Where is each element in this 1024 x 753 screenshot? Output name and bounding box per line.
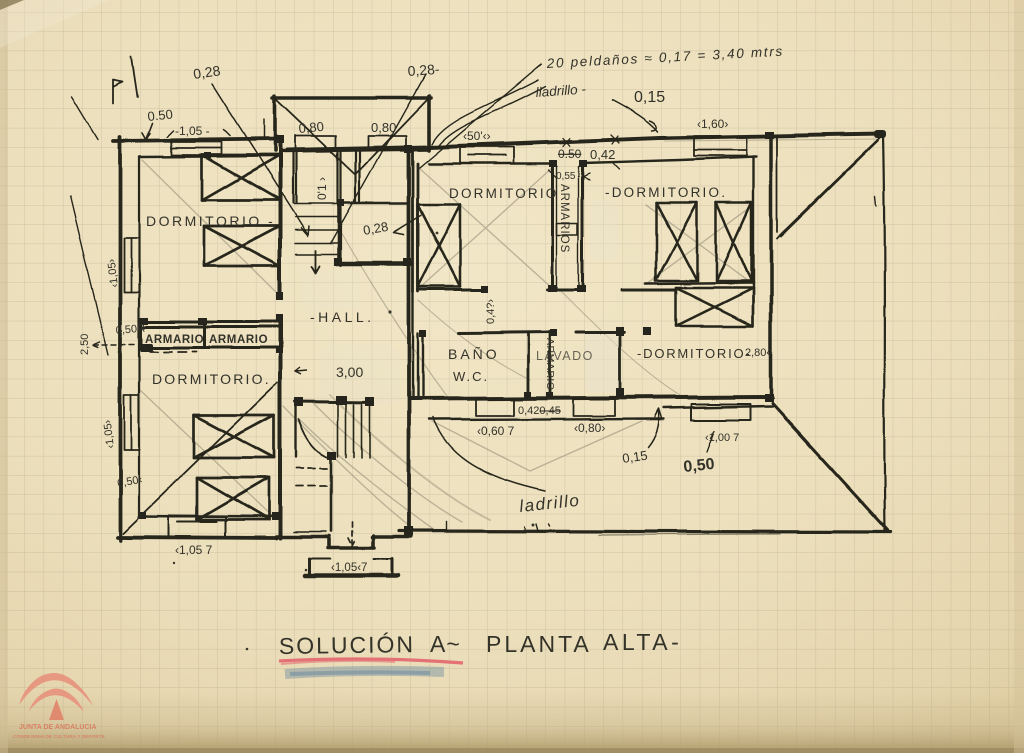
svg-text:-DORMITORIO.: -DORMITORIO.: [605, 185, 727, 200]
svg-text:JUNTA DE ANDALUCIA: JUNTA DE ANDALUCIA: [19, 724, 97, 731]
svg-text:‹1,60›: ‹1,60›: [697, 117, 728, 131]
svg-text:0,80: 0,80: [371, 120, 396, 135]
svg-text:A~: A~: [430, 631, 461, 657]
svg-text:-DORMITORIO-: -DORMITORIO-: [637, 346, 752, 361]
svg-text:-1,05 -: -1,05 -: [175, 124, 210, 138]
svg-text:3,00: 3,00: [336, 364, 363, 380]
svg-text:BAÑO: BAÑO: [448, 346, 500, 362]
svg-text:0,80: 0,80: [298, 119, 325, 136]
svg-text:SOLUCIÓN: SOLUCIÓN: [279, 631, 415, 659]
svg-text:PLANTA: PLANTA: [486, 631, 592, 657]
svg-text:‹1,00 7: ‹1,00 7: [705, 432, 739, 444]
svg-text:0.50: 0.50: [147, 106, 174, 124]
svg-text:0,50: 0,50: [683, 456, 716, 476]
svg-text:0,15: 0,15: [634, 89, 665, 106]
svg-text:ARMARIO: ARMARIO: [209, 334, 268, 346]
svg-text:0,50R: 0,50R: [115, 322, 145, 337]
svg-text:W.C.: W.C.: [453, 369, 489, 384]
svg-text:0'1 ›: 0'1 ›: [315, 177, 329, 200]
svg-text:ALTA-: ALTA-: [603, 629, 682, 655]
svg-text:-HALL.: -HALL.: [310, 309, 375, 325]
svg-text:‹1,05 7: ‹1,05 7: [175, 543, 213, 557]
svg-text:‹0,60 7: ‹0,60 7: [477, 424, 515, 438]
svg-text:ARMARIO: ARMARIO: [145, 334, 204, 346]
svg-text:ARMARIOS: ARMARIOS: [558, 184, 570, 253]
svg-text:DORMITORIO: DORMITORIO: [449, 186, 559, 201]
svg-text:0,4?›: 0,4?›: [485, 299, 497, 324]
svg-text:ARMARIO: ARMARIO: [544, 338, 556, 391]
svg-text:DORMITORIO.: DORMITORIO.: [152, 371, 271, 387]
svg-text:DORMITORIO -: DORMITORIO -: [146, 213, 275, 229]
svg-text:‹0,80›: ‹0,80›: [574, 421, 605, 435]
svg-text:0,55: 0,55: [556, 171, 576, 182]
svg-text:CONSEJERIA DE CULTURA Y DEPORT: CONSEJERIA DE CULTURA Y DEPORTE: [13, 734, 106, 740]
svg-text:0,42: 0,42: [590, 147, 615, 162]
svg-text:2,80‹: 2,80‹: [745, 347, 770, 359]
svg-text:0,420,45: 0,420,45: [518, 405, 561, 417]
svg-text:0,28-: 0,28-: [407, 61, 440, 79]
svg-text:2,50: 2,50: [79, 334, 91, 355]
svg-text:‹1,05‹7: ‹1,05‹7: [331, 562, 367, 574]
svg-text:‹50'‹›: ‹50'‹›: [463, 129, 491, 143]
svg-text:0.50: 0.50: [558, 147, 582, 161]
